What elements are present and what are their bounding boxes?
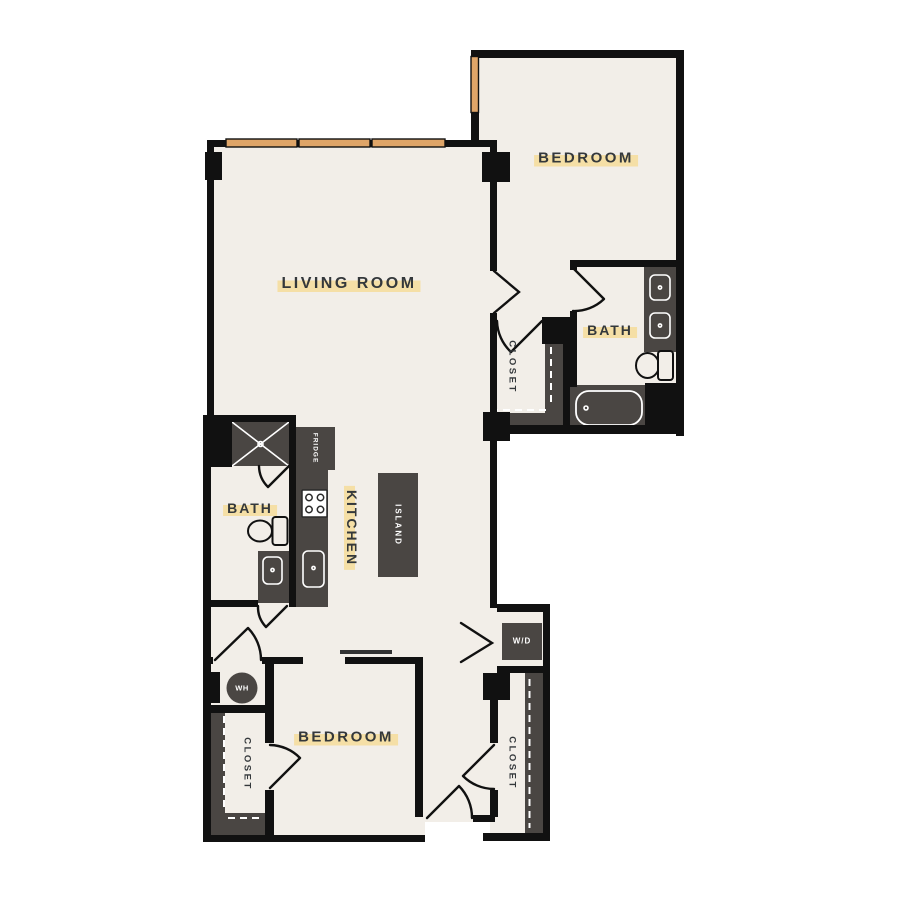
bedroom-top-label: BEDROOM — [534, 150, 638, 167]
wall-bottom — [203, 835, 425, 842]
bathtub — [576, 391, 642, 425]
wall-kitchen-right — [490, 441, 497, 608]
closet-bl-shelf-bottom — [211, 813, 268, 835]
wall-closet-br-left-a — [490, 700, 498, 743]
column-tub-right — [645, 383, 684, 432]
wall-wh-nook-bottom — [203, 705, 267, 713]
living-room-window-2 — [299, 139, 370, 147]
closet-br-shelf — [525, 673, 543, 833]
floor-plan-drawing — [0, 0, 900, 900]
wall-hall-b — [262, 657, 303, 664]
wall-left-bottom — [203, 705, 211, 842]
toilet-right-tank — [658, 351, 673, 380]
closet-mid-shelf-right — [545, 344, 563, 413]
closet-bottom-left-label: CLOSET — [242, 737, 253, 791]
wall-right-lower — [543, 604, 550, 840]
stove — [302, 490, 327, 517]
wall-wd-niche-top — [497, 604, 550, 612]
kitchen-label: KITCHEN — [344, 486, 360, 570]
wall-right — [676, 50, 684, 436]
burner — [306, 494, 312, 500]
wall-closet-bl-right-a — [265, 664, 274, 743]
floor-plan: LIVING ROOM BEDROOM BATH BATH KITCHEN BE… — [0, 0, 900, 900]
wall-bath-right-left-b — [570, 311, 577, 387]
wall-hall-a — [203, 657, 213, 664]
living-room-window-3 — [372, 139, 445, 147]
wall-left-mid — [203, 415, 211, 712]
bath-right-label: BATH — [583, 322, 637, 338]
wall-kitchen-bath-divider — [289, 415, 296, 607]
column-wh-nook — [205, 672, 220, 703]
bath-left-label: BATH — [223, 500, 277, 516]
bedroom-bottom-label: BEDROOM — [294, 729, 398, 746]
toilet-right-bowl — [636, 353, 659, 378]
closet-mid-label: CLOSET — [507, 340, 518, 394]
water-heater-label: WH — [235, 684, 249, 693]
burner — [317, 506, 323, 512]
bedroom-sliding-door — [340, 650, 392, 654]
wall-lr-closet-divider — [490, 313, 497, 412]
bath-right-vanity — [644, 267, 676, 352]
wall-closet-br-left-b — [490, 790, 498, 817]
wall-closet-bl-right-b — [265, 790, 274, 835]
fridge-label: FRIDGE — [312, 433, 319, 464]
bedroom-window — [471, 57, 479, 113]
wall-bath-right-top — [570, 260, 684, 267]
washer-dryer-label: W/D — [513, 637, 532, 646]
column-closet-mid-top — [542, 317, 565, 344]
windows — [226, 57, 479, 148]
wall-living-room-left — [207, 140, 214, 425]
wall-bedroom-bottom-right — [415, 657, 423, 817]
burner — [306, 506, 312, 512]
wall-wd-niche-bottom — [497, 666, 543, 673]
island-label: ISLAND — [394, 504, 403, 546]
living-room-label: LIVING ROOM — [277, 275, 420, 293]
burner — [317, 494, 323, 500]
toilet-left-bowl — [248, 521, 272, 542]
wall-lr-bedroom-divider — [490, 147, 497, 271]
wall-closet-br-bottom — [483, 833, 550, 841]
toilet-left-tank — [273, 517, 288, 545]
wall-bedroom-bottom-top — [345, 657, 423, 664]
living-room-window-1 — [226, 139, 297, 147]
closet-bottom-right-label: CLOSET — [507, 736, 518, 790]
wall-bath-left-bottom — [203, 600, 258, 607]
column-closet-mid — [483, 412, 510, 441]
wall-top — [471, 50, 684, 58]
column-below-wd — [483, 673, 510, 700]
column-living-room-left — [205, 152, 222, 180]
